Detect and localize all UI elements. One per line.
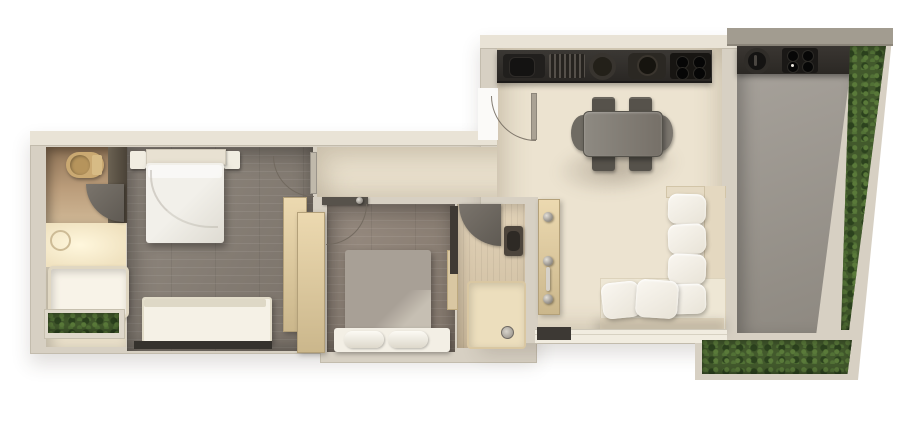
bed-2-roll-pillow-1 — [344, 331, 384, 348]
planter-left-hedge — [48, 313, 119, 333]
living-wall-top — [480, 35, 737, 49]
coat-knob-2 — [543, 256, 553, 266]
balcony-wall-top — [727, 28, 893, 46]
sofa-back-cushion-1 — [668, 194, 707, 225]
outdoor-grill — [744, 48, 770, 74]
outdoor-hob-dot — [791, 64, 794, 67]
sofa-back-cushion-3 — [667, 253, 706, 284]
kitchen-sink-basin — [509, 57, 535, 77]
outdoor-grill-handle — [754, 55, 757, 66]
dish-drainer — [549, 54, 585, 78]
bedroom-1-bench-rail — [144, 299, 266, 307]
pot-station-ring — [637, 55, 658, 76]
hob-burner-3 — [676, 67, 689, 80]
entry-door-leaf — [531, 93, 537, 140]
sofa-back-cushion-2 — [667, 223, 706, 254]
toilet-tank — [92, 155, 102, 175]
floor-plan-render — [0, 0, 900, 435]
sofa-seat-pillow-2 — [635, 279, 680, 320]
dining-table — [583, 111, 663, 157]
outdoor-hob-burner-3 — [787, 61, 799, 73]
nightstand-left — [130, 151, 146, 169]
washbasin-bowl — [507, 231, 520, 251]
coat-knob-1 — [543, 212, 553, 222]
nightstand-right — [224, 151, 240, 169]
shower-head — [50, 230, 71, 251]
living-window-dark-segment — [537, 327, 571, 340]
coat-knob-3 — [543, 294, 553, 304]
round-burner — [589, 53, 616, 80]
bed-2-roll-pillow-2 — [388, 331, 428, 348]
outdoor-hob-burner-4 — [802, 61, 814, 73]
shower-tray — [467, 281, 526, 349]
wardrobe-panel-b — [297, 212, 325, 353]
bedroom-1-door-leaf — [310, 152, 317, 194]
balcony-planter-bottom-hedge — [702, 340, 852, 374]
floor-drain — [501, 326, 514, 339]
hob-burner-4 — [693, 67, 706, 80]
coat-panel-handle — [546, 267, 550, 291]
left-wing-wall-top — [30, 131, 535, 146]
bedroom-1-window — [134, 341, 272, 349]
bedroom-2-door-knob — [356, 197, 363, 204]
toilet-seat — [70, 155, 90, 175]
bathroom-2-open-door — [450, 206, 458, 274]
